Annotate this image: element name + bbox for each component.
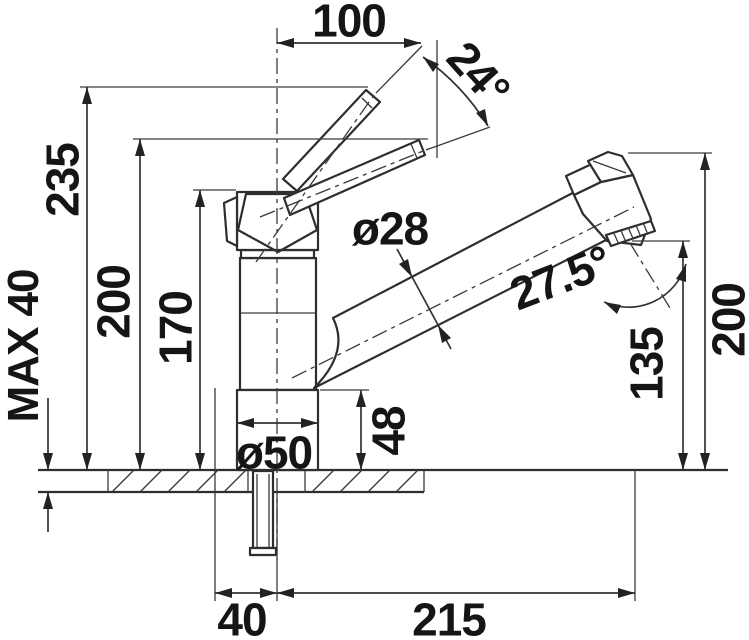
- body-column: [240, 258, 316, 390]
- mounting-shank: [250, 471, 276, 555]
- dim-o28-label: ø28: [352, 203, 429, 255]
- dim-215-label: 215: [412, 594, 486, 640]
- dim-100-label: 100: [312, 0, 386, 47]
- dim-24deg-label: 24°: [437, 31, 520, 115]
- dim-40-label: 40: [217, 594, 266, 640]
- housing-tab: [224, 197, 237, 246]
- countertop: [38, 470, 728, 492]
- dim-48-label: 48: [363, 406, 415, 456]
- dim-200-left-label: 200: [88, 265, 140, 339]
- dim-135-label: 135: [621, 327, 673, 401]
- technical-drawing: 100 24° 235 200 170 MAX 40 ø28 27.5° ø50…: [0, 0, 749, 640]
- outlet-axis: [630, 243, 670, 308]
- faucet-body: [224, 90, 655, 555]
- dim-o50-label: ø50: [236, 427, 312, 479]
- faucet-dimension-drawing: 100 24° 235 200 170 MAX 40 ø28 27.5° ø50…: [0, 0, 749, 640]
- dim-275-arc: [604, 264, 686, 307]
- dim-200-right-label: 200: [703, 283, 749, 357]
- dim-170-label: 170: [150, 291, 202, 365]
- dim-max40-label: MAX 40: [0, 270, 48, 423]
- dim-235-label: 235: [37, 143, 89, 217]
